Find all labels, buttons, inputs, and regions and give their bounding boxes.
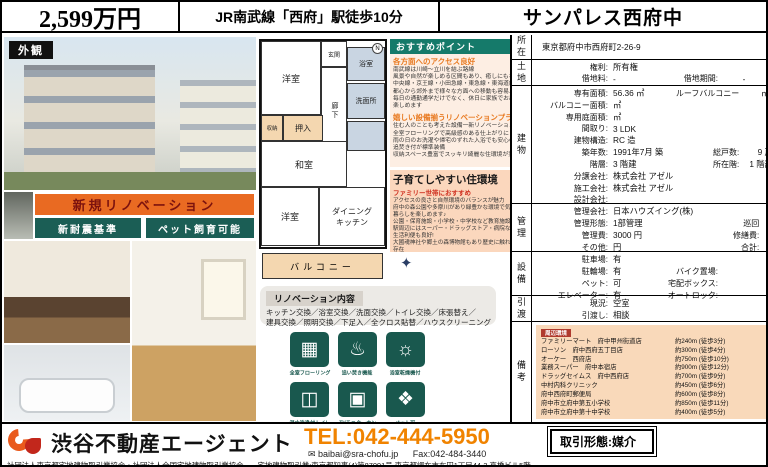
agency-name: 渋谷不動産エージェント (51, 428, 293, 458)
row-label-1: 引渡し: (532, 310, 608, 321)
row-label-2: 総戸数: (673, 147, 739, 158)
renovation-contents: リノベーション内容 キッチン交換／浴室交換／洗面交換／トイレ交換／床張替え／ 建… (260, 286, 496, 325)
agency-brand: 渋谷不動産エージェント (8, 427, 293, 459)
points-line: 都心から郊外まで様々な方面への移動も容易♪ (393, 89, 508, 96)
row-label-1: 駐輪場: (532, 266, 608, 277)
place-name: 中村内科クリニック (541, 382, 675, 391)
table-row: 駐輪場: 有 バイク置場: (532, 265, 768, 277)
table-row: 専有面積: 56.36 ㎡ ルーフバルコニー ㎡ (532, 87, 768, 99)
row-value-1: ㎡ (608, 111, 673, 123)
license-line: 社団法人東京都宅地建物取引業協会・社団法人全国宅地建物取引業協会 宅地建物取引業… (7, 460, 531, 467)
header-bar: 2,599万円 JR南武線「西府」駅徒歩10分 サンパレス西府中 (2, 2, 766, 33)
row-label-1: 駐車場: (532, 254, 608, 265)
points-title: おすすめポイント (390, 39, 511, 54)
row-value-2: 1 階部分 (739, 158, 768, 170)
surroundings-label: 周辺環境 (541, 329, 571, 337)
row-label-2: バイク置場: (652, 266, 718, 277)
row-value-1: 所有権 (608, 61, 652, 73)
feature-badge-icon: ♨ (338, 332, 377, 367)
section-tag-management: 管理 (512, 204, 532, 251)
bathroom-photo (4, 345, 130, 421)
room-western-1: 洋室 (261, 41, 321, 115)
contact-line: baibai@sra-chofu.jp Fax:042-484-3440 (308, 449, 486, 460)
north-icon: N (372, 43, 383, 54)
table-row: 間取り: 3 LDK (532, 123, 768, 134)
section-tag-land: 土地 (512, 60, 532, 85)
row-label-1: 分譲会社: (532, 171, 608, 182)
dk-label-line2: キッチン (336, 217, 368, 228)
row-label-2: 合計: (693, 242, 759, 253)
property-flyer: 2,599万円 JR南武線「西府」駅徒歩10分 サンパレス西府中 外観 新規リノ… (0, 0, 768, 467)
feature-badge: ▣ TVモニターホン (336, 382, 379, 427)
table-row: バルコニー面積: ㎡ (532, 99, 768, 111)
family-line: 公園・保育施設・小学校・中学校など教育施設も充実 (393, 219, 508, 226)
property-name: サンパレス西府中 (440, 2, 766, 31)
feature-badge-icon: ▦ (290, 332, 329, 367)
row-label-1: バルコニー面積: (532, 100, 608, 111)
floor-plan: N 洋室 玄関 廊下 浴室 洗面所 収納 押入 和室 洋室 ダイニング キッチン… (259, 39, 387, 285)
surroundings-list: ファミリーマート 府中甲州街道店 約240m (徒歩3分) ローソン 府中西府五… (541, 338, 761, 417)
section-location: 所在 東京都府中市西府町2-26-9 (512, 35, 768, 60)
place-name: 業務スーパー 府中本宿店 (541, 364, 675, 373)
deal-type: 取引形態:媒介 (550, 429, 654, 454)
feature-badges: ▦ 全室フローリング ♨ 追い焚き機能 ☼ 浴室乾燥機付 ◫ 温水洗浄付トイレ … (288, 332, 427, 427)
row-label-1: 専用庭面積: (532, 112, 608, 123)
room-storage: 収納 (261, 115, 283, 141)
row-value-1: 有 (608, 253, 652, 265)
section-tag-building: 建物 (512, 86, 532, 203)
surroundings-item: 府中西府町郵便局 約600m (徒歩8分) (541, 391, 761, 400)
points-heading-access: 各方面へのアクセス良好 (393, 56, 508, 67)
surroundings-item: ファミリーマート 府中甲州街道店 約240m (徒歩3分) (541, 338, 761, 347)
section-land: 土地 権利: 所有権 借地料: - 借地期間: - (512, 60, 768, 86)
section-building: 建物 専有面積: 56.36 ㎡ ルーフバルコニー ㎡ バルコニー面積: ㎡ (512, 86, 768, 204)
table-row: 現況: 空室 (532, 297, 768, 309)
row-value-1: 株式会社 アゼル (608, 182, 673, 194)
table-row: 分譲会社: 株式会社 アゼル (532, 170, 768, 182)
hedge-shape (4, 172, 256, 190)
feature-badge-icon: ▣ (338, 382, 377, 417)
place-distance: 約900m (徒歩12分) (675, 364, 761, 373)
renovation-line-2: 建具交換／照明交換／下足入／全クロス貼替／ハウスクリーニング (266, 318, 490, 328)
surroundings-item: ドラッグセイムス 府中西府店 約700m (徒歩9分) (541, 373, 761, 382)
row-label-1: ペット: (532, 278, 608, 289)
feature-badge-label: 全室フローリング (289, 369, 330, 377)
row-value-1: 3000 円 (608, 229, 693, 241)
row-label-1: 築年数: (532, 147, 608, 158)
property-detail-table: 所在 東京都府中市西府町2-26-9 土地 権利: 所有権 借地料: - (510, 35, 768, 422)
exterior-photo: 外観 (4, 37, 256, 190)
place-distance: 約400m (徒歩5分) (675, 409, 761, 418)
seismic-standard-pill: 新耐震基準 (35, 218, 141, 238)
living-room-photo (132, 241, 256, 421)
family-subtitle: ファミリー世帯におすすめ (393, 187, 508, 197)
points-line: 中央線・京王線・小田急線・東急線・東海道線と接続しており (393, 81, 508, 88)
room-entrance: 玄関 (321, 41, 347, 67)
row-label-1: 専有面積: (532, 88, 608, 99)
family-environment-box: 子育てしやすい住環境 ファミリー世帯におすすめ アクセスの良さと自然環境のバラン… (390, 170, 511, 252)
place-distance: 約700m (徒歩9分) (675, 373, 761, 382)
row-label-1: 施工会社: (532, 183, 608, 194)
row-label-2: 巡回 (693, 218, 759, 229)
section-handover: 引渡 現況: 空室 引渡し: 相談 (512, 296, 768, 322)
row-value-1: 株式会社 アゼル (608, 170, 673, 182)
window-shape (201, 259, 246, 320)
footer: 渋谷不動産エージェント TEL:042-444-5950 baibai@sra-… (2, 422, 766, 467)
place-distance: 約240m (徒歩3分) (675, 338, 761, 347)
row-label-2: 宅配ボックス: (652, 278, 718, 289)
points-line: 住む人のことも考えた設備一新リノベーション (393, 123, 508, 130)
place-name: 府中市立府中第五小学校 (541, 400, 675, 409)
place-name: ドラッグセイムス 府中西府店 (541, 373, 675, 382)
sparkle-icon (400, 254, 413, 272)
price: 2,599万円 (2, 2, 180, 31)
surroundings-item: 府中市立府中第五小学校 約850m (徒歩11分) (541, 400, 761, 409)
pet-allowed-pill: ペット飼育可能 (146, 218, 254, 238)
row-value-1: RC 造 (608, 134, 673, 146)
deal-type-box: 取引形態:媒介 (547, 426, 657, 457)
feature-badge: ▦ 全室フローリング (288, 332, 331, 377)
phone-number: TEL:042-444-5950 (304, 424, 490, 450)
row-label-2: 所在階: (673, 159, 739, 170)
renovation-banner: 新規リノベーション (35, 194, 254, 215)
row-label-2: 借地期間: (652, 73, 718, 84)
points-renovation-lines: 住む人のことも考えた設備一新リノベーション全室フローリングで高級感のある仕上がり… (390, 123, 511, 159)
row-label-2: 修繕費: (693, 230, 759, 241)
table-row: 階層: 3 階建 所在階: 1 階部分 (532, 158, 768, 170)
table-row: 管理費: 3000 円 修繕費: 5000 円 (532, 229, 768, 241)
points-line: 全室フローリングで高級感のある仕上がりに (393, 131, 508, 138)
license-number: 宅地建物取引業:東京都知事(4)第87091号 東京都調布市布田1丁目44-3 … (258, 460, 531, 467)
row-label-1: その他: (532, 242, 608, 253)
row-label-1: 管理費: (532, 230, 608, 241)
balcony: バルコニー (262, 253, 383, 279)
kitchen-photo (4, 241, 130, 343)
feature-badge-label: 浴室乾燥機付 (390, 369, 421, 377)
points-heading-renovation: 嬉しい設備揃うリノベーションプラン (393, 112, 508, 123)
table-row: ペット: 可 宅配ボックス: (532, 277, 768, 289)
feature-badge: ◫ 温水洗浄付トイレ (288, 382, 331, 427)
row-value-1: 可 (608, 277, 652, 289)
fax-number: Fax:042-484-3440 (413, 449, 487, 459)
room-toilet (347, 121, 385, 151)
row-value-1: ㎡ (608, 99, 673, 111)
table-row: 建物構造: RC 造 (532, 134, 768, 146)
table-row: 権利: 所有権 (532, 61, 768, 73)
bathtub-shape (19, 378, 115, 413)
place-name: 府中西府町郵便局 (541, 391, 675, 400)
row-value-1: 日本ハウズイング(株) (608, 205, 693, 217)
table-row: 専用庭面積: ㎡ (532, 111, 768, 123)
row-value-1: 56.36 ㎡ (608, 87, 673, 99)
table-row: 駐車場: 有 (532, 253, 768, 265)
row-value-1: 1991年7月 築 (608, 146, 673, 158)
room-closet: 押入 (283, 115, 323, 141)
section-management: 管理 管理会社: 日本ハウズイング(株) 管理形態: 1部管理 巡回 (512, 204, 768, 252)
place-distance: 約600m (徒歩8分) (675, 391, 761, 400)
surroundings-item: 中村内科クリニック 約450m (徒歩6分) (541, 382, 761, 391)
family-lines: アクセスの良さと自然環境のバランスが魅力府中の森公園や多摩川があり緑豊かな環境で… (393, 198, 508, 252)
place-distance: 約300m (徒歩4分) (675, 347, 761, 356)
section-tag-facilities: 設備 (512, 252, 532, 295)
section-tag-remarks: 備考 (512, 322, 532, 422)
place-name: 府中市立府中第十中学校 (541, 409, 675, 418)
row-label-1: 権利: (532, 62, 608, 73)
address-value: 東京都府中市西府町2-26-9 (532, 36, 768, 58)
row-label-1: 現況: (532, 298, 608, 309)
row-label-1: 借地料: (532, 73, 608, 84)
family-line: アクセスの良さと自然環境のバランスが魅力 (393, 198, 508, 205)
feature-badge-icon: ☼ (386, 332, 425, 367)
feature-badge-icon: ❖ (386, 382, 425, 417)
feature-badge-icon: ◫ (290, 382, 329, 417)
row-value-1: 1部管理 (608, 217, 693, 229)
agency-logo-icon (8, 427, 46, 459)
row-value-1: 有 (608, 265, 652, 277)
room-japanese: 和室 (261, 141, 347, 187)
row-label-2: ルーフバルコニー (673, 88, 739, 99)
row-value-1: 3 階建 (608, 158, 673, 170)
section-facilities: 設備 駐車場: 有 駐輪場: 有 バイク置場: (512, 252, 768, 296)
row-label-1: 管理形態: (532, 218, 608, 229)
feature-badge: ❖ ペット可 (384, 382, 427, 427)
row-value-2: 5000 円 (759, 229, 768, 241)
photo-sliver (4, 192, 33, 239)
renovation-title: リノベーション内容 (266, 291, 363, 306)
family-line: 存在 (393, 247, 508, 252)
floor-plan-outline: N 洋室 玄関 廊下 浴室 洗面所 収納 押入 和室 洋室 ダイニング キッチン (259, 39, 387, 249)
family-line: 大國魂神社や郷土の森博物館もあり歴史に触れられるスポット (393, 240, 508, 247)
row-label-1: 建物構造: (532, 135, 608, 146)
table-row: 借地料: - 借地期間: - (532, 73, 768, 84)
place-name: ローソン 府中西府五丁目店 (541, 347, 675, 356)
room-western-2: 洋室 (261, 187, 319, 246)
section-tag-handover: 引渡 (512, 296, 532, 321)
feature-badge: ☼ 浴室乾燥機付 (384, 332, 427, 377)
family-line: 駅周辺にはスーパー・ドラッグストア・病院などが揃っていて (393, 226, 508, 233)
row-value-2: 9 戸 (739, 146, 768, 158)
room-washroom: 洗面所 (347, 83, 385, 119)
table-row: 管理形態: 1部管理 巡回 (532, 217, 768, 229)
exterior-label: 外観 (9, 41, 53, 59)
table-row: 築年数: 1991年7月 築 総戸数: 9 戸 (532, 146, 768, 158)
points-access-lines: 南武線は川崎〜立川を結ぶ路線風景や自然が楽しめる区間もあり、癒しにもなります中央… (390, 67, 511, 110)
place-distance: 約450m (徒歩6分) (675, 382, 761, 391)
section-tag-location: 所在 (512, 35, 532, 59)
row-value-1: 3 LDK (608, 124, 673, 134)
row-label-1: 階層: (532, 159, 608, 170)
row-label-1: 間取り: (532, 123, 608, 134)
points-line: 収納スペース豊富でスッキリ綺麗な住環境が実現可能 (393, 152, 508, 159)
table-row: 施工会社: 株式会社 アゼル (532, 182, 768, 194)
surroundings-box: 周辺環境 ファミリーマート 府中甲州街道店 約240m (徒歩3分) ローソン … (536, 325, 766, 419)
family-line: 生活利便も良好! (393, 233, 508, 240)
table-row: 管理会社: 日本ハウズイング(株) (532, 205, 768, 217)
points-line: 楽しめます (393, 103, 508, 110)
place-distance: 約850m (徒歩11分) (675, 400, 761, 409)
recommended-points-box: おすすめポイント 各方面へのアクセス良好 南武線は川崎〜立川を結ぶ路線風景や自然… (390, 39, 511, 167)
dk-label-line1: ダイニング (332, 206, 372, 217)
row-value-2: ㎡ (739, 87, 768, 99)
room-dining-kitchen: ダイニング キッチン (319, 187, 385, 246)
renovation-line-1: キッチン交換／浴室交換／洗面交換／トイレ交換／床張替え／ (266, 308, 490, 318)
table-row: 引渡し: 相談 (532, 309, 768, 321)
place-name: ファミリーマート 府中甲州街道店 (541, 338, 675, 347)
surroundings-item: ローソン 府中西府五丁目店 約300m (徒歩4分) (541, 347, 761, 356)
surroundings-item: 府中市立府中第十中学校 約400m (徒歩5分) (541, 409, 761, 418)
feature-badge: ♨ 追い焚き機能 (336, 332, 379, 377)
associations: 社団法人東京都宅地建物取引業協会・社団法人全国宅地建物取引業協会 (7, 460, 244, 467)
row-value-1: 相談 (608, 309, 652, 321)
row-label-1: 管理会社: (532, 206, 608, 217)
family-line: 暮らしを楽しめます♪ (393, 212, 508, 219)
email-icon (308, 449, 318, 459)
email-address: baibai@sra-chofu.jp (318, 449, 398, 459)
row-value-2: - (718, 74, 768, 84)
section-remarks: 備考 周辺環境 ファミリーマート 府中甲州街道店 約240m (徒歩3分) (512, 322, 768, 422)
feature-badge-label: 追い焚き機能 (342, 369, 373, 377)
station-access: JR南武線「西府」駅徒歩10分 (180, 2, 440, 31)
surroundings-item: 業務スーパー 府中本宿店 約900m (徒歩12分) (541, 364, 761, 373)
family-title: 子育てしやすい住環境 (393, 172, 508, 187)
family-line: 府中の森公園や多摩川があり緑豊かな環境で気持ちの良い (393, 205, 508, 212)
row-value-1: 空室 (608, 297, 652, 309)
row-value-1: - (608, 74, 652, 84)
